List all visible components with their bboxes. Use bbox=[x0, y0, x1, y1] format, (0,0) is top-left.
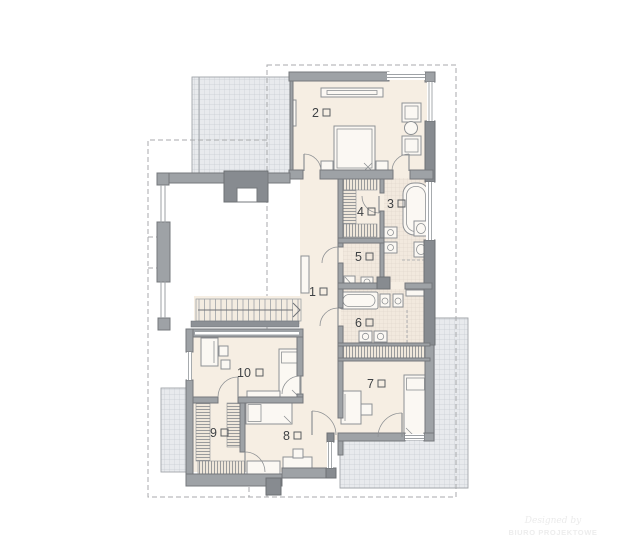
window bbox=[387, 72, 425, 80]
bed bbox=[246, 402, 292, 424]
hall-console bbox=[301, 256, 309, 293]
window bbox=[427, 82, 434, 121]
bed bbox=[404, 375, 427, 438]
wall bbox=[268, 173, 290, 183]
bidet bbox=[384, 242, 397, 253]
nightstand bbox=[321, 161, 333, 171]
window bbox=[327, 442, 333, 468]
pier bbox=[157, 222, 170, 282]
wall bbox=[338, 238, 384, 243]
nightstand bbox=[376, 161, 388, 171]
chimney bbox=[266, 478, 281, 495]
staircase bbox=[191, 299, 301, 327]
room-number: 2 bbox=[312, 106, 319, 120]
wardrobe bbox=[321, 88, 383, 97]
desk bbox=[201, 338, 218, 366]
wall bbox=[290, 81, 293, 174]
wall bbox=[338, 343, 430, 346]
terrace-top-left bbox=[192, 77, 292, 174]
hall-wardrobe-band bbox=[339, 346, 427, 358]
wall bbox=[405, 283, 432, 289]
wall bbox=[186, 380, 193, 476]
wall bbox=[297, 337, 303, 376]
wall bbox=[338, 283, 378, 289]
post bbox=[158, 318, 170, 330]
wall bbox=[186, 329, 193, 352]
bed bbox=[334, 126, 375, 171]
wall bbox=[338, 358, 430, 361]
floor-plan-page: 1 2 3 4 5 6 7 8 bbox=[0, 0, 638, 556]
window bbox=[405, 434, 424, 440]
stair-railing bbox=[191, 321, 299, 327]
room-number: 5 bbox=[355, 250, 362, 264]
shelf bbox=[247, 461, 280, 474]
room-4-shelf-bottom bbox=[341, 224, 377, 237]
room-number: 7 bbox=[367, 377, 374, 391]
side-table bbox=[221, 360, 230, 369]
room-9-shelf-left bbox=[196, 403, 210, 461]
wall bbox=[410, 170, 433, 179]
room-9-shelf-mid bbox=[227, 403, 241, 447]
wall bbox=[327, 433, 334, 442]
room-number: 9 bbox=[210, 426, 217, 440]
wall bbox=[425, 72, 435, 82]
bidet bbox=[393, 294, 403, 307]
wall bbox=[326, 468, 336, 478]
toilet bbox=[380, 294, 390, 307]
wall bbox=[238, 397, 303, 403]
wall bbox=[377, 277, 390, 289]
wall bbox=[338, 326, 343, 418]
room-number: 6 bbox=[355, 316, 362, 330]
room-number: 10 bbox=[237, 366, 251, 380]
wall-cabinet bbox=[406, 290, 426, 296]
room-4-shelf-top bbox=[339, 179, 377, 190]
wall-inner-face bbox=[195, 332, 299, 335]
room-number: 4 bbox=[357, 205, 364, 219]
window bbox=[426, 182, 434, 240]
post bbox=[157, 173, 169, 185]
room-9-shelf-bottom bbox=[198, 461, 245, 474]
room-number: 3 bbox=[387, 197, 394, 211]
chair bbox=[293, 449, 303, 458]
wall bbox=[162, 173, 224, 183]
wall bbox=[380, 179, 384, 193]
wall bbox=[424, 240, 435, 345]
wall bbox=[240, 403, 245, 452]
floor-plan-drawing: 1 2 3 4 5 6 7 8 bbox=[0, 0, 638, 556]
wall bbox=[191, 397, 218, 403]
chair bbox=[361, 404, 372, 415]
window bbox=[187, 352, 192, 380]
wall bbox=[289, 72, 389, 81]
washbasin bbox=[359, 331, 372, 342]
desk bbox=[341, 391, 361, 424]
room-number: 8 bbox=[283, 429, 290, 443]
wall bbox=[338, 179, 343, 247]
wall bbox=[338, 433, 405, 441]
wall bbox=[320, 170, 393, 179]
round-table bbox=[405, 122, 418, 135]
wall bbox=[289, 170, 303, 179]
wall bbox=[380, 211, 384, 288]
room-number: 1 bbox=[309, 285, 316, 299]
wall bbox=[424, 433, 434, 441]
chair bbox=[219, 346, 228, 356]
toilet bbox=[384, 227, 397, 238]
washbasin bbox=[374, 331, 387, 342]
chimney-flue bbox=[237, 188, 257, 202]
